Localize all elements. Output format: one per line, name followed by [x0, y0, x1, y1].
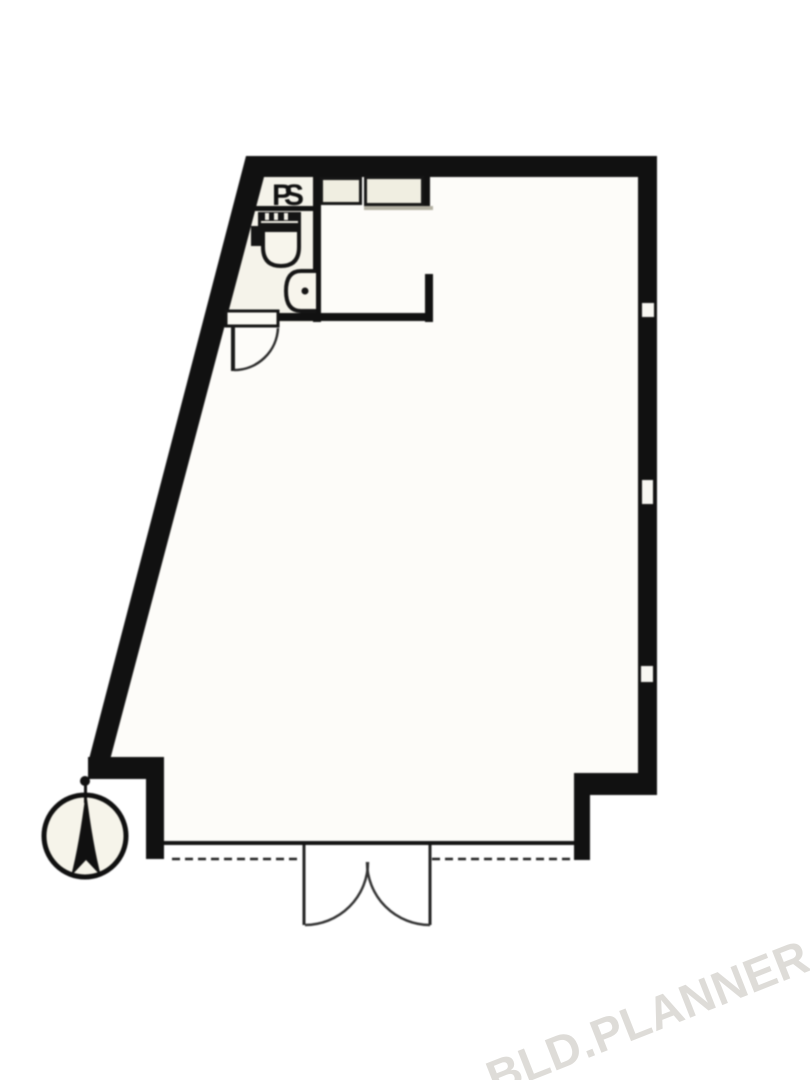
svg-text:PS: PS — [272, 179, 304, 212]
